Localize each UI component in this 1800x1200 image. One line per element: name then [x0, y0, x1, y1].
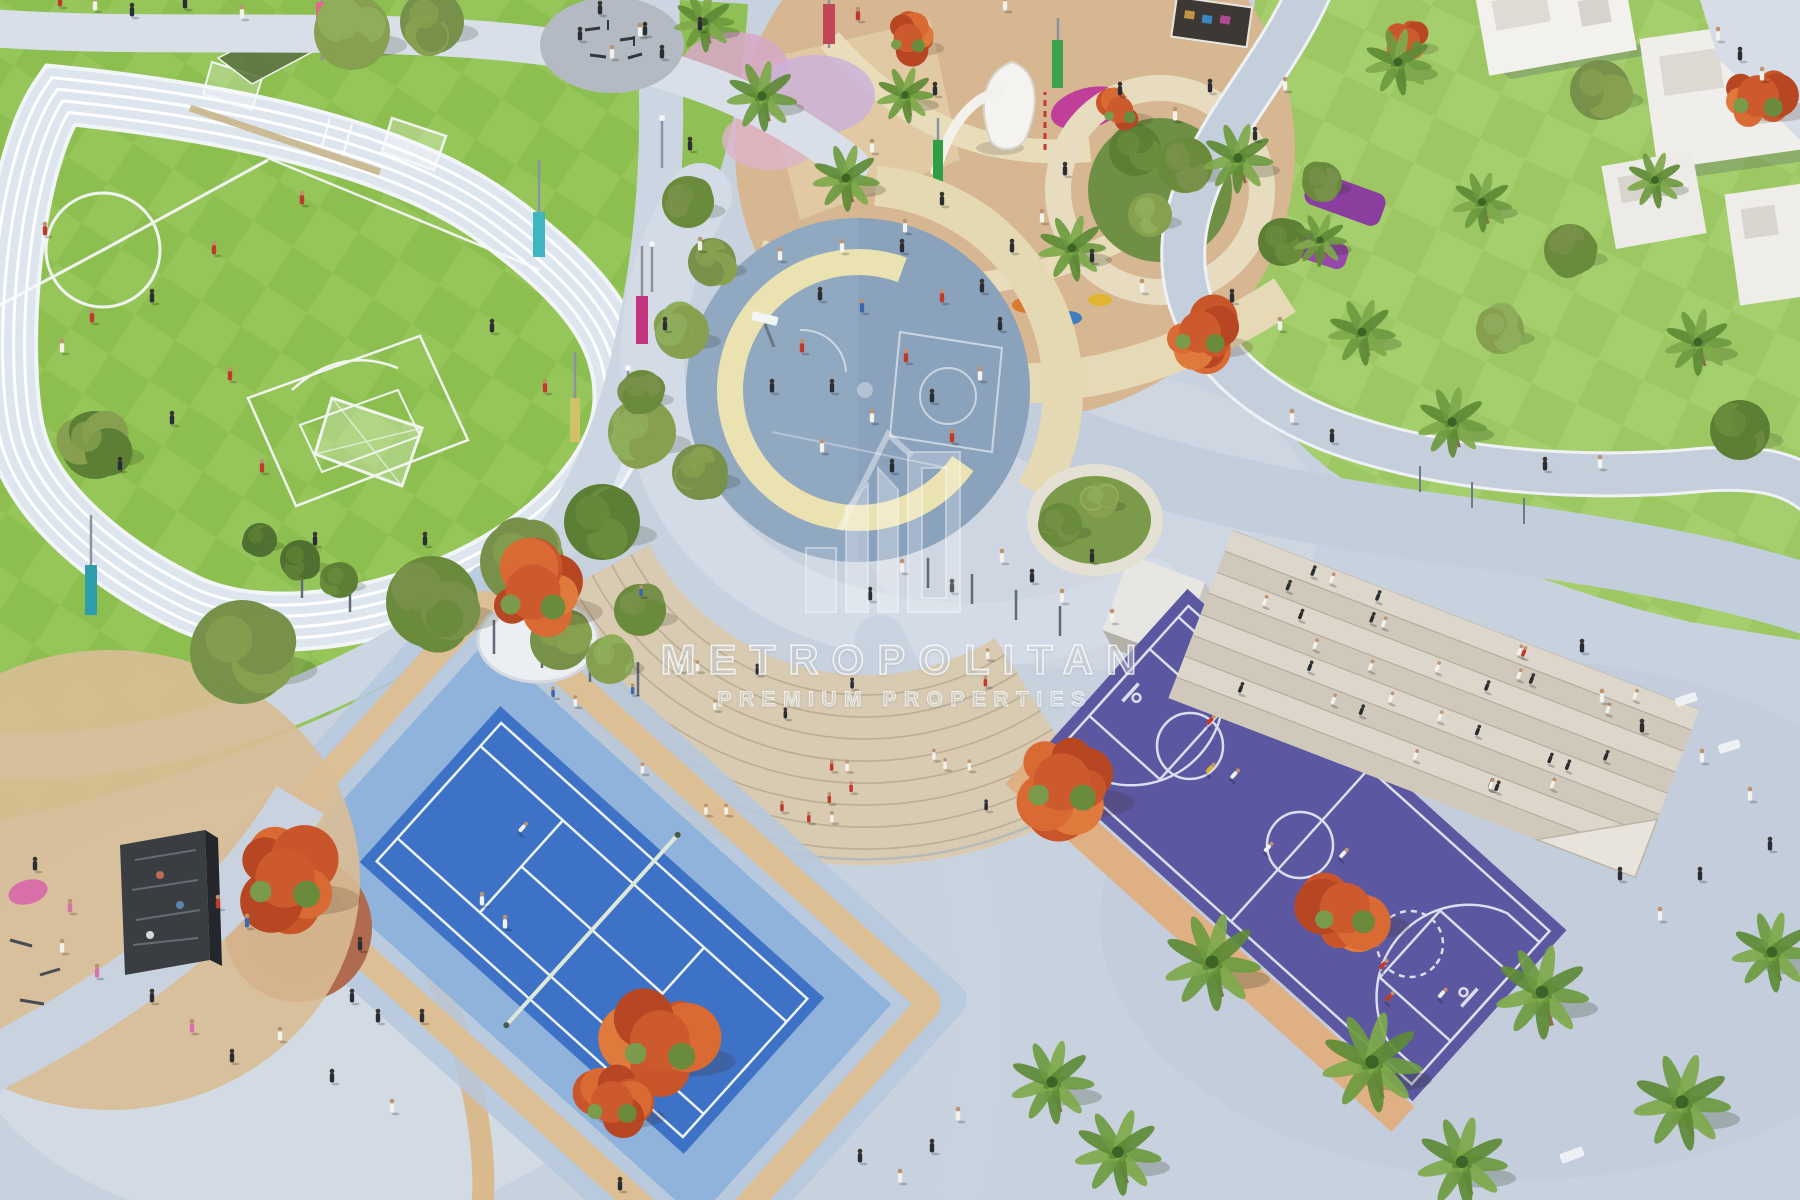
- watermark-subtitle: PREMIUM PROPERTIES: [717, 688, 1092, 712]
- park-aerial-render: METROPOLITAN PREMIUM PROPERTIES: [0, 0, 1800, 1200]
- park-illustration: [0, 0, 1800, 1200]
- play-item: [1088, 294, 1112, 306]
- watermark-title: METROPOLITAN: [661, 636, 1150, 684]
- mural-wall: [120, 830, 222, 975]
